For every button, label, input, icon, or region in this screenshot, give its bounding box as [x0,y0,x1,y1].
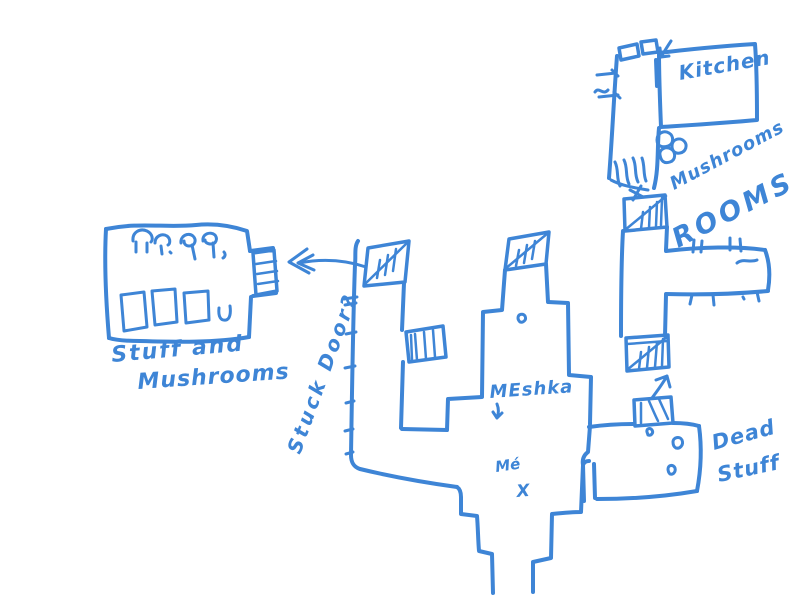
map-labels: Kitchen Mushrooms ROOMS Stuff and Mushro… [110,45,799,502]
small-circle-marker [518,314,526,322]
bed-rect-1 [619,44,639,60]
meshka-arrow-icon [493,404,502,418]
door-hatch-dead-room [634,397,673,426]
door-hatch-storage [253,250,278,295]
bottom-steps-left [457,487,493,593]
squiggle-mark [595,90,608,92]
dead-stuff-room [583,397,701,501]
up-arrow-icon [652,376,670,398]
hand-drawn-dungeon-map: Kitchen Mushrooms ROOMS Stuff and Mushro… [0,0,800,600]
dead-stuff-label-line1: Dead [709,415,778,455]
loot-dot-1 [647,429,653,436]
mushroom-cluster [657,132,686,163]
stuff-mushrooms-label-line1: Stuff and [110,331,245,368]
loot-dot-3 [668,465,675,474]
bottom-steps-right [533,461,589,592]
bed-rect-2 [641,40,658,54]
storage-room [105,224,278,341]
stairs-hatch-top [624,195,667,231]
x-marker: X [515,481,532,502]
stairs-hatch-bottom [626,335,669,371]
loot-dot-2 [673,438,683,449]
mushroom-doodles [133,230,225,259]
kitchen-arrow-icon [660,41,671,57]
me-label: Mé [494,455,521,476]
crate-doodles [121,289,230,331]
stuff-mushrooms-label-line2: Mushrooms [137,359,291,395]
stairs-hatch-middle-top [364,241,409,286]
central-room [402,232,591,593]
dead-stuff-label-line2: Stuff [715,450,784,487]
stairs-hatch-central-top [505,232,549,270]
kitchen-corridor [595,40,659,200]
side-door-hatch [406,326,446,362]
middle-corridor [344,241,457,487]
whiteboard-canvas[interactable]: Kitchen Mushrooms ROOMS Stuff and Mushro… [0,0,800,600]
inner-squiggle [737,260,757,263]
meshka-label: MEshka [489,376,574,403]
